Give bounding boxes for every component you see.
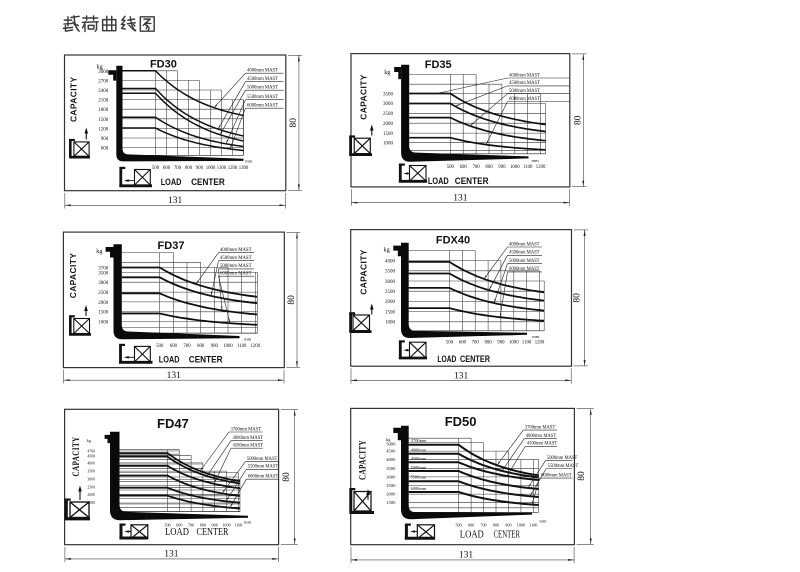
svg-text:80: 80 xyxy=(282,472,292,482)
svg-text:700: 700 xyxy=(183,344,191,349)
svg-text:4000mm MAST: 4000mm MAST xyxy=(526,433,557,439)
svg-text:2000: 2000 xyxy=(385,300,396,305)
svg-text:FD50: FD50 xyxy=(445,414,477,429)
svg-text:900: 900 xyxy=(505,522,511,527)
svg-text:900: 900 xyxy=(498,165,506,170)
svg-text:80: 80 xyxy=(573,293,583,303)
svg-text:mm: mm xyxy=(244,520,252,525)
svg-text:mm: mm xyxy=(244,336,252,341)
svg-text:6000mm MAST: 6000mm MAST xyxy=(220,271,252,277)
svg-text:4500mm MAST: 4500mm MAST xyxy=(220,255,252,261)
svg-text:2500: 2500 xyxy=(385,290,396,295)
svg-text:3000: 3000 xyxy=(87,478,95,482)
svg-text:4000mm MAST: 4000mm MAST xyxy=(220,247,252,253)
svg-text:4500mm MAST: 4500mm MAST xyxy=(247,76,279,82)
svg-text:1100: 1100 xyxy=(522,340,532,345)
svg-text:3000: 3000 xyxy=(383,102,394,107)
svg-text:600: 600 xyxy=(170,344,178,349)
svg-text:900: 900 xyxy=(101,137,109,142)
svg-text:FD37: FD37 xyxy=(158,240,185,252)
svg-text:1000: 1000 xyxy=(223,344,233,349)
svg-text:mm: mm xyxy=(245,159,253,164)
svg-text:kg: kg xyxy=(384,246,390,253)
svg-text:600: 600 xyxy=(468,522,474,527)
svg-text:CENTER: CENTER xyxy=(455,176,489,187)
svg-text:2000: 2000 xyxy=(383,122,394,127)
svg-text:3500: 3500 xyxy=(87,470,95,474)
svg-text:131: 131 xyxy=(454,371,469,381)
svg-text:5500mm MAST: 5500mm MAST xyxy=(548,463,579,469)
svg-text:kg: kg xyxy=(384,69,390,76)
svg-text:4500mm MAST: 4500mm MAST xyxy=(233,443,264,449)
svg-text:700: 700 xyxy=(480,522,486,527)
svg-text:1200: 1200 xyxy=(251,344,261,349)
svg-text:3500: 3500 xyxy=(386,466,396,471)
svg-text:1100: 1100 xyxy=(217,166,227,171)
svg-text:3700mm: 3700mm xyxy=(411,438,427,443)
svg-text:3000: 3000 xyxy=(98,281,109,286)
svg-text:1000: 1000 xyxy=(509,340,519,345)
svg-text:FD30: FD30 xyxy=(150,58,177,70)
svg-text:3000: 3000 xyxy=(98,70,109,75)
svg-text:4500mm MAST: 4500mm MAST xyxy=(527,441,558,447)
svg-text:CAPACITY: CAPACITY xyxy=(358,440,368,480)
svg-text:600: 600 xyxy=(459,340,467,345)
svg-text:CENTER: CENTER xyxy=(189,354,223,365)
svg-text:5000mm MAST: 5000mm MAST xyxy=(509,88,541,94)
svg-text:1100: 1100 xyxy=(523,165,533,170)
svg-text:5000mm MAST: 5000mm MAST xyxy=(247,456,278,462)
svg-text:500: 500 xyxy=(447,165,455,170)
svg-text:700: 700 xyxy=(174,166,182,171)
svg-text:600: 600 xyxy=(163,166,171,171)
svg-text:500: 500 xyxy=(156,344,164,349)
svg-text:2500: 2500 xyxy=(87,485,95,489)
svg-text:1200: 1200 xyxy=(535,340,545,345)
svg-text:LOAD: LOAD xyxy=(428,176,449,187)
svg-text:1000: 1000 xyxy=(385,321,396,326)
svg-text:131: 131 xyxy=(453,194,468,204)
svg-text:3700mm MAST: 3700mm MAST xyxy=(231,426,262,432)
svg-text:1800: 1800 xyxy=(98,108,109,113)
svg-text:131: 131 xyxy=(164,549,179,559)
svg-text:5000mm: 5000mm xyxy=(411,465,427,470)
svg-text:CENTER: CENTER xyxy=(494,530,521,541)
svg-text:1500: 1500 xyxy=(98,311,109,316)
svg-text:4500mm: 4500mm xyxy=(411,456,427,461)
svg-text:kg: kg xyxy=(96,248,102,255)
svg-text:CENTER: CENTER xyxy=(197,527,229,538)
svg-text:6000mm MAST: 6000mm MAST xyxy=(509,96,541,102)
svg-text:800: 800 xyxy=(185,166,193,171)
svg-text:3500: 3500 xyxy=(383,92,394,97)
svg-text:LOAD: LOAD xyxy=(159,354,180,365)
svg-text:1500: 1500 xyxy=(386,500,396,505)
svg-text:131: 131 xyxy=(459,550,474,560)
svg-text:500: 500 xyxy=(152,166,160,171)
svg-text:CAPACITY: CAPACITY xyxy=(358,74,368,120)
svg-text:mm: mm xyxy=(532,158,540,163)
svg-text:700: 700 xyxy=(472,340,480,345)
svg-text:5500mm: 5500mm xyxy=(411,475,427,480)
svg-text:700: 700 xyxy=(472,165,480,170)
svg-text:LOAD: LOAD xyxy=(161,177,182,188)
svg-text:80: 80 xyxy=(287,295,297,305)
svg-text:4500: 4500 xyxy=(87,454,95,458)
svg-text:1100: 1100 xyxy=(237,344,247,349)
svg-text:800: 800 xyxy=(485,165,493,170)
svg-text:800: 800 xyxy=(197,344,205,349)
svg-text:1000: 1000 xyxy=(206,166,216,171)
svg-text:4000mm MAST: 4000mm MAST xyxy=(233,435,264,441)
svg-text:5000mm MAST: 5000mm MAST xyxy=(547,455,578,461)
svg-text:80: 80 xyxy=(573,115,583,125)
svg-text:FD35: FD35 xyxy=(425,59,452,71)
svg-text:FDX40: FDX40 xyxy=(436,235,470,247)
svg-text:5500mm MAST: 5500mm MAST xyxy=(247,94,279,100)
svg-text:2000: 2000 xyxy=(98,301,109,306)
svg-text:131: 131 xyxy=(167,371,182,381)
svg-text:4000: 4000 xyxy=(385,259,396,264)
svg-text:2100: 2100 xyxy=(98,99,109,104)
svg-text:5500mm MAST: 5500mm MAST xyxy=(248,464,279,470)
svg-text:1000: 1000 xyxy=(517,522,525,527)
svg-text:1500: 1500 xyxy=(98,118,109,123)
svg-text:5000mm MAST: 5000mm MAST xyxy=(220,263,252,269)
svg-text:2500: 2500 xyxy=(383,112,394,117)
svg-text:1500: 1500 xyxy=(383,132,394,137)
svg-text:LOAD: LOAD xyxy=(437,354,456,365)
svg-text:1200: 1200 xyxy=(536,165,546,170)
svg-text:1500: 1500 xyxy=(385,310,396,315)
svg-text:6000mm: 6000mm xyxy=(411,486,427,491)
svg-text:CAPACITY: CAPACITY xyxy=(69,77,79,123)
svg-text:6000mm MAST: 6000mm MAST xyxy=(541,472,572,478)
svg-text:2000: 2000 xyxy=(386,492,396,497)
svg-text:900: 900 xyxy=(196,166,204,171)
svg-text:4500mm MAST: 4500mm MAST xyxy=(509,80,541,86)
svg-text:2700: 2700 xyxy=(98,79,109,84)
svg-text:80: 80 xyxy=(289,118,299,128)
svg-text:1000: 1000 xyxy=(98,321,109,326)
svg-text:3000: 3000 xyxy=(385,280,396,285)
svg-text:LOAD: LOAD xyxy=(165,527,189,538)
svg-text:131: 131 xyxy=(168,196,183,206)
svg-text:800: 800 xyxy=(484,340,492,345)
svg-text:1000: 1000 xyxy=(383,142,394,147)
svg-text:900: 900 xyxy=(211,344,219,349)
svg-text:5000mm MAST: 5000mm MAST xyxy=(509,258,540,264)
svg-text:2500: 2500 xyxy=(98,291,109,296)
svg-text:600: 600 xyxy=(460,165,468,170)
svg-text:1000: 1000 xyxy=(510,165,520,170)
svg-text:4000: 4000 xyxy=(386,457,396,462)
svg-text:500: 500 xyxy=(446,340,454,345)
svg-text:4700: 4700 xyxy=(87,449,95,453)
svg-text:2500: 2500 xyxy=(386,483,396,488)
svg-text:FD47: FD47 xyxy=(157,416,189,431)
svg-text:2000: 2000 xyxy=(87,493,95,497)
svg-text:mm: mm xyxy=(532,334,540,339)
svg-text:3500: 3500 xyxy=(98,271,109,276)
svg-text:CAPACITY: CAPACITY xyxy=(68,253,78,299)
svg-text:4000mm MAST: 4000mm MAST xyxy=(509,72,541,78)
svg-text:500: 500 xyxy=(455,522,461,527)
svg-text:80: 80 xyxy=(577,471,587,481)
svg-text:5000: 5000 xyxy=(386,442,396,447)
svg-text:3700mm MAST: 3700mm MAST xyxy=(525,424,556,430)
svg-text:5000mm MAST: 5000mm MAST xyxy=(247,85,279,91)
svg-text:900: 900 xyxy=(497,340,505,345)
svg-text:4000mm MAST: 4000mm MAST xyxy=(509,241,540,247)
svg-text:2400: 2400 xyxy=(98,89,109,94)
svg-text:CENTER: CENTER xyxy=(460,354,490,365)
svg-text:1200: 1200 xyxy=(98,127,109,132)
svg-text:1100: 1100 xyxy=(529,522,537,527)
svg-text:1100: 1100 xyxy=(234,523,242,528)
svg-text:4500mm MAST: 4500mm MAST xyxy=(509,250,540,256)
svg-text:CAPACITY: CAPACITY xyxy=(71,436,81,476)
svg-text:3000: 3000 xyxy=(386,474,396,479)
svg-text:4000: 4000 xyxy=(87,462,95,466)
svg-text:CAPACITY: CAPACITY xyxy=(358,249,368,295)
svg-text:4000mm MAST: 4000mm MAST xyxy=(247,68,279,74)
svg-text:1200: 1200 xyxy=(228,166,238,171)
svg-text:6000mm MAST: 6000mm MAST xyxy=(248,474,279,480)
svg-text:mm: mm xyxy=(539,519,547,524)
svg-text:6000mm MAST: 6000mm MAST xyxy=(509,266,540,272)
svg-text:3500: 3500 xyxy=(385,270,396,275)
svg-text:4000mm: 4000mm xyxy=(411,448,427,453)
svg-text:LOAD: LOAD xyxy=(460,530,484,541)
svg-text:1300: 1300 xyxy=(239,166,249,171)
svg-text:6000mm MAST: 6000mm MAST xyxy=(247,103,279,109)
svg-text:CENTER: CENTER xyxy=(191,177,225,188)
svg-text:4500: 4500 xyxy=(386,449,396,454)
svg-text:800: 800 xyxy=(493,522,499,527)
svg-text:600: 600 xyxy=(101,147,109,152)
